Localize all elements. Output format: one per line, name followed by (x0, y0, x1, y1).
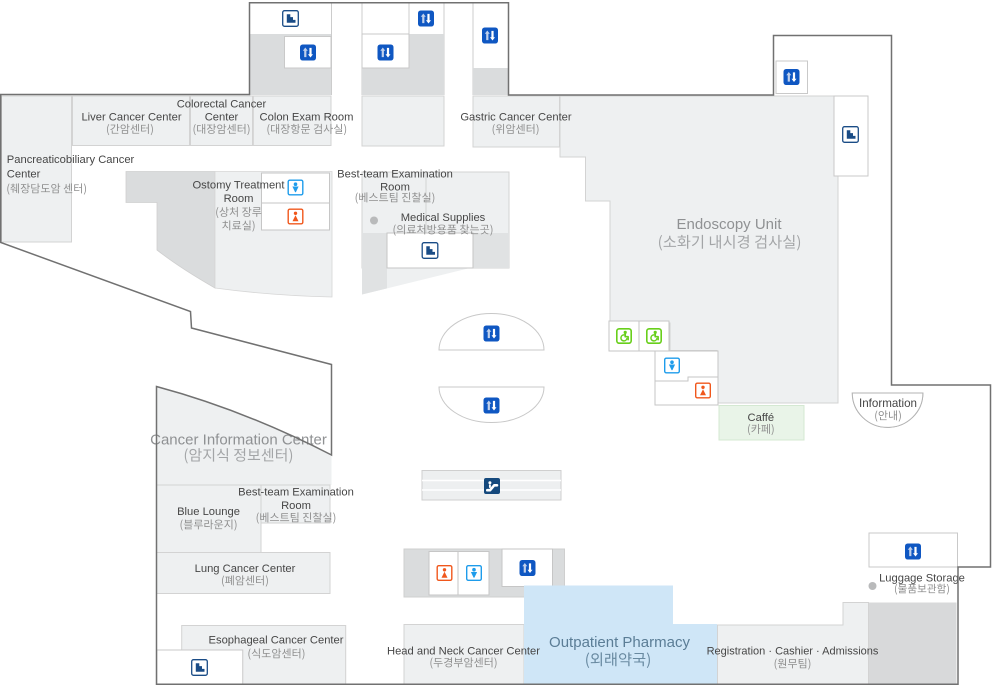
svg-text:Liver Cancer Center: Liver Cancer Center (81, 112, 181, 124)
svg-text:Ostomy Treatment: Ostomy Treatment (192, 180, 285, 192)
svg-text:Room: Room (380, 182, 410, 194)
svg-text:Best-team Examination: Best-team Examination (238, 487, 354, 499)
svg-text:Colorectal Cancer: Colorectal Cancer (177, 99, 267, 111)
svg-text:Head and Neck Cancer Center: Head and Neck Cancer Center (387, 646, 540, 658)
svg-text:Best-team Examination: Best-team Examination (337, 169, 453, 181)
svg-text:Outpatient Pharmacy: Outpatient Pharmacy (549, 634, 690, 651)
svg-text:Room: Room (281, 500, 311, 512)
svg-text:Lung Cancer Center: Lung Cancer Center (195, 563, 296, 575)
svg-text:Luggage Storage: Luggage Storage (879, 573, 965, 585)
svg-text:Pancreaticobiliary Cancer: Pancreaticobiliary Cancer (7, 154, 135, 166)
svg-text:Endoscopy Unit: Endoscopy Unit (676, 216, 782, 233)
svg-text:Blue Lounge: Blue Lounge (177, 506, 240, 518)
svg-text:Center: Center (7, 169, 41, 181)
svg-text:Esophageal Cancer Center: Esophageal Cancer Center (209, 635, 344, 647)
svg-text:Medical Supplies: Medical Supplies (401, 212, 486, 224)
svg-text:Gastric Cancer Center: Gastric Cancer Center (460, 112, 572, 124)
svg-text:Information: Information (859, 397, 917, 410)
svg-text:Caffé: Caffé (748, 412, 775, 424)
svg-text:Room: Room (224, 193, 254, 205)
svg-text:Registration · Cashier · Admis: Registration · Cashier · Admissions (707, 646, 879, 658)
svg-text:Center: Center (205, 112, 239, 124)
svg-text:Colon Exam Room: Colon Exam Room (260, 112, 354, 124)
